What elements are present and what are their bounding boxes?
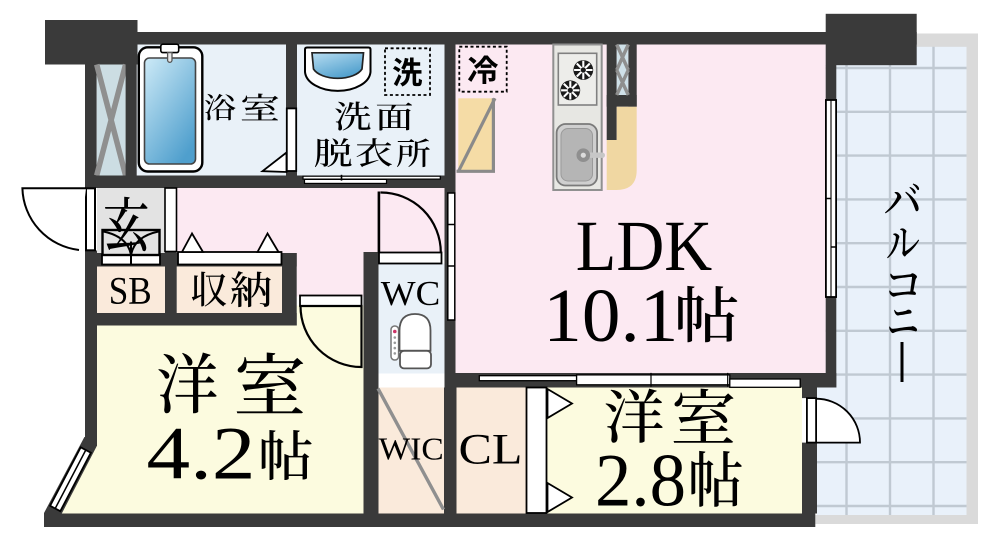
svg-text:4.2: 4.2 (147, 413, 256, 496)
svg-text:WIC: WIC (379, 431, 444, 467)
svg-text:10.1: 10.1 (543, 274, 678, 358)
svg-text:CL: CL (459, 427, 523, 474)
svg-text:2.8: 2.8 (595, 439, 686, 522)
svg-text:SB: SB (109, 270, 152, 313)
svg-text:WC: WC (381, 274, 441, 313)
